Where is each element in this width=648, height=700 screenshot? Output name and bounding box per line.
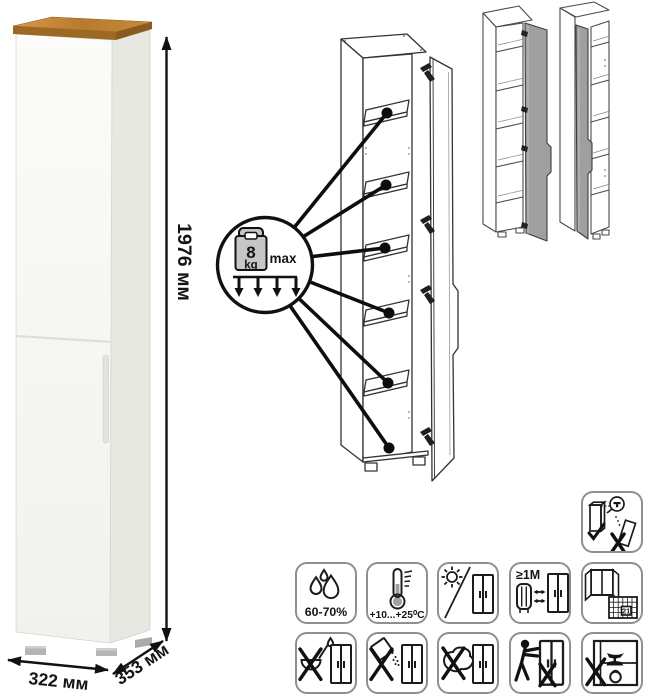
door-handle-groove	[103, 355, 109, 443]
person-icon	[516, 640, 538, 680]
variant-door-panel	[525, 23, 551, 241]
distance-label: ≥1M	[516, 568, 540, 582]
calendar-icon: 21	[609, 597, 637, 618]
care-icon-no-overload	[581, 632, 643, 694]
cabinet-side-panel	[110, 30, 150, 643]
wardrobe-icon	[331, 645, 351, 683]
fall-motion-dots	[615, 516, 620, 526]
shelf-load-diagram: 8 kg max	[200, 0, 470, 520]
width-dimension-arrow	[8, 660, 108, 670]
wardrobe-icon	[473, 575, 493, 613]
anvil-icon	[606, 653, 624, 666]
max-label: max	[269, 251, 297, 266]
care-icon-no-dragging	[509, 632, 571, 694]
care-icon-ventilation: 21	[581, 562, 643, 624]
care-icon-no-liquids	[295, 632, 357, 694]
door-variants	[470, 0, 648, 245]
temperature-label: +10...+25⁰C	[369, 610, 425, 621]
cross-icon	[612, 534, 624, 551]
thermometer-icon	[391, 569, 413, 609]
radiator-icon	[517, 584, 531, 613]
care-icon-no-wet-wiping	[437, 632, 499, 694]
care-icon-heat-distance: ≥1M	[509, 562, 571, 624]
window-icon	[586, 570, 619, 600]
kettlebell-icon	[610, 671, 621, 683]
variant-right-hinged	[483, 6, 551, 241]
sun-icon	[442, 567, 463, 588]
drawing-foot	[413, 457, 425, 465]
max-load-badge: 8 kg max	[218, 218, 313, 313]
wardrobe-icon	[473, 645, 493, 683]
tipping-cabinet-icon	[618, 520, 635, 546]
variant-door-panel	[576, 25, 592, 239]
height-dimension-label: 1976 мм	[173, 223, 195, 301]
care-icon-humidity: 60-70%	[295, 562, 357, 624]
product-sheet: 1976 мм 322 мм 353 мм	[0, 0, 648, 700]
weight-unit-label: kg	[244, 260, 257, 272]
cabinet-line-drawing	[341, 34, 458, 481]
water-drops-icon	[311, 570, 339, 598]
wardrobe-icon	[402, 645, 422, 683]
powder-box-icon	[371, 638, 400, 666]
product-photo: 1976 мм 322 мм 353 мм	[0, 0, 200, 700]
humidity-label: 60-70%	[305, 605, 347, 619]
width-dimension-label: 322 мм	[28, 668, 90, 694]
variant-left-hinged	[560, 2, 610, 239]
care-icon-anchor-to-wall	[581, 491, 643, 553]
cross-icon	[371, 649, 392, 679]
wardrobe-icon	[548, 574, 568, 612]
magnifier-icon	[607, 497, 624, 513]
drawing-foot	[365, 463, 377, 471]
calendar-day-label: 21	[622, 606, 630, 615]
care-icon-no-direct-sunlight	[437, 562, 499, 624]
care-icon-temperature: +10...+25⁰C	[366, 562, 428, 624]
cross-icon	[587, 659, 605, 685]
care-icon-no-powder	[366, 632, 428, 694]
slash-icon	[445, 567, 470, 618]
double-arrow-icon	[534, 590, 546, 603]
